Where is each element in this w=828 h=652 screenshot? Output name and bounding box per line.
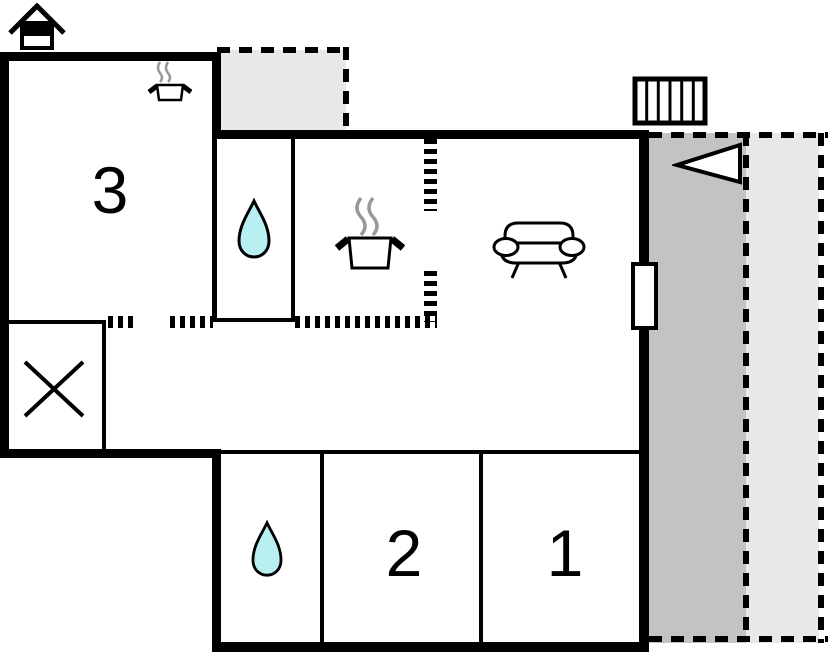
wall-segment bbox=[639, 130, 649, 652]
wall-segment bbox=[212, 642, 649, 652]
stove-icon bbox=[330, 194, 410, 270]
terrace-right-inner bbox=[649, 133, 746, 643]
room-3-label: 3 bbox=[60, 152, 160, 228]
stairs-icon bbox=[632, 76, 708, 126]
dotted-wall bbox=[424, 139, 437, 211]
dotted-wall bbox=[170, 316, 213, 328]
interior-wall bbox=[291, 139, 295, 322]
room-1-label: 1 bbox=[513, 514, 617, 592]
terrace-top bbox=[217, 50, 346, 133]
terrace-right-dashed-divider bbox=[743, 133, 749, 642]
room-2-label: 2 bbox=[352, 514, 456, 592]
dotted-wall bbox=[108, 316, 133, 328]
dotted-wall bbox=[424, 271, 437, 322]
sofa-icon bbox=[492, 216, 586, 282]
house-icon bbox=[7, 3, 67, 51]
dotted-wall bbox=[295, 316, 437, 328]
interior-wall bbox=[212, 318, 295, 322]
wall-segment bbox=[0, 449, 221, 458]
wall-segment bbox=[212, 449, 221, 652]
terrace-top-dashed-border bbox=[217, 47, 349, 53]
wall-segment bbox=[0, 52, 9, 458]
terrace-top-dashed-border bbox=[343, 47, 349, 135]
interior-wall bbox=[212, 139, 217, 322]
direction-arrow-icon bbox=[672, 140, 744, 186]
kitchenette-stove-icon bbox=[140, 58, 192, 104]
terrace-right-outer bbox=[746, 133, 819, 643]
interior-wall bbox=[479, 452, 483, 642]
terrace-right-dashed-border bbox=[649, 132, 828, 138]
floor-plan: 3 2 1 bbox=[0, 0, 828, 652]
interior-wall bbox=[102, 320, 106, 452]
interior-wall bbox=[221, 450, 639, 454]
water-drop-icon bbox=[250, 520, 284, 578]
crossed-square-icon bbox=[20, 355, 88, 423]
interior-wall bbox=[320, 452, 324, 642]
door bbox=[631, 262, 658, 330]
wall-segment bbox=[212, 130, 649, 139]
terrace-right-dashed-border bbox=[649, 636, 828, 642]
wall-segment bbox=[212, 52, 221, 139]
terrace-right-dashed-border bbox=[818, 133, 824, 643]
water-drop-icon bbox=[236, 198, 272, 260]
interior-wall bbox=[0, 320, 106, 324]
